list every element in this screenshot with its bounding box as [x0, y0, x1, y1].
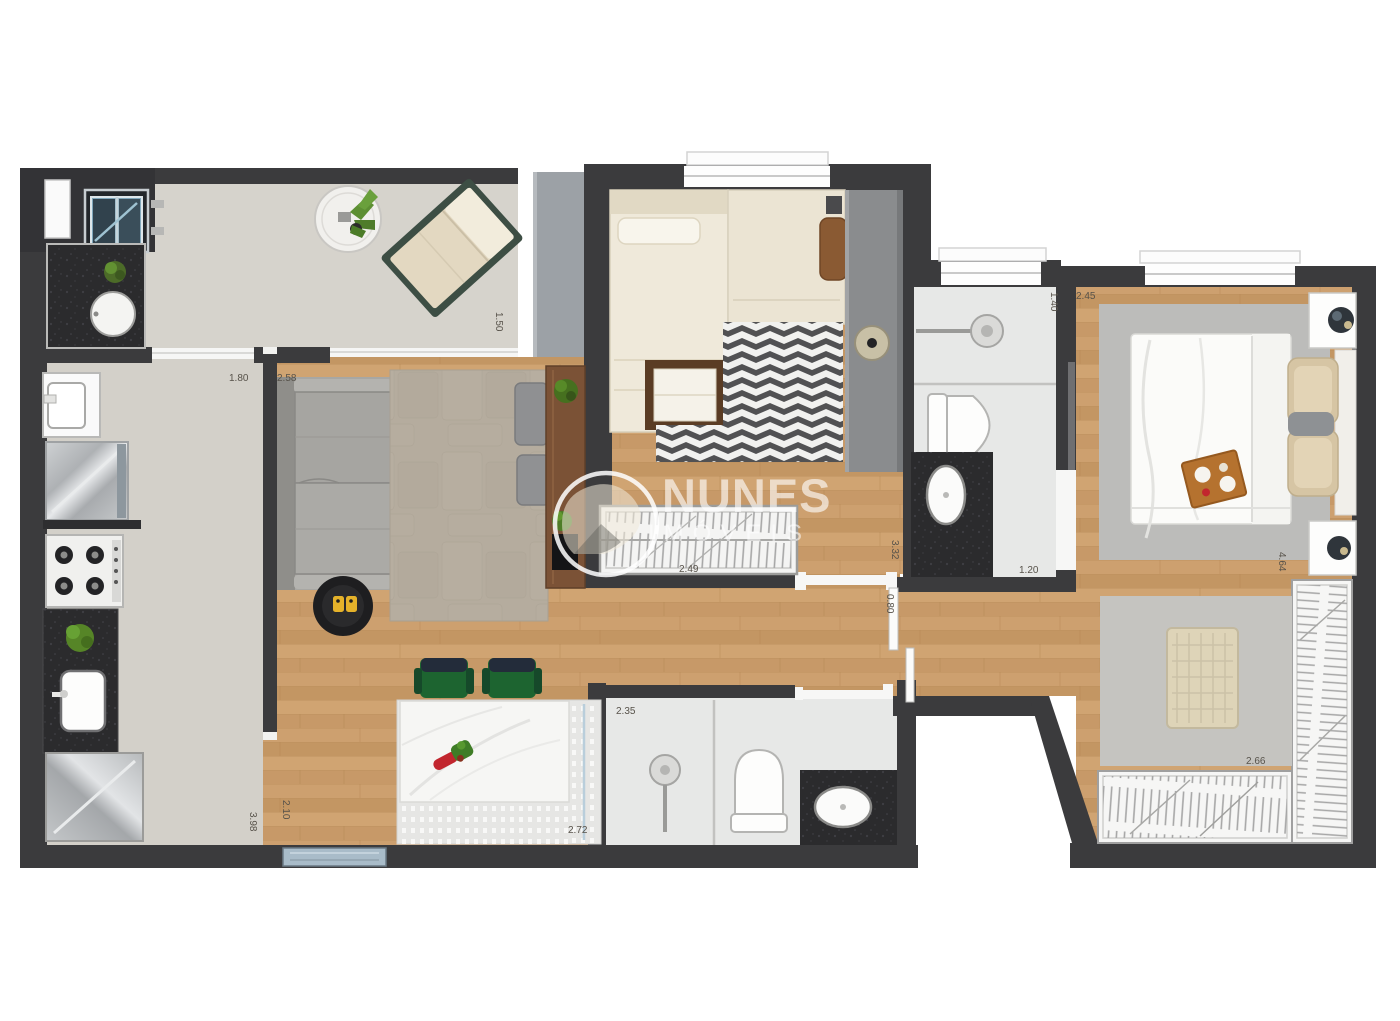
svg-text:2.72: 2.72: [568, 825, 588, 836]
svg-text:IMÓVEIS: IMÓVEIS: [648, 520, 811, 547]
svg-text:1.50: 1.50: [493, 312, 504, 332]
svg-text:2.66: 2.66: [1246, 756, 1266, 767]
svg-text:3.98: 3.98: [247, 812, 258, 832]
svg-text:3.32: 3.32: [889, 540, 900, 560]
svg-text:1.40: 1.40: [1048, 292, 1059, 312]
svg-text:4.64: 4.64: [1276, 552, 1287, 572]
svg-text:2.35: 2.35: [616, 706, 636, 717]
svg-text:2.49: 2.49: [679, 564, 699, 575]
svg-text:NUNES: NUNES: [662, 469, 832, 522]
svg-text:1.80: 1.80: [229, 373, 249, 384]
svg-text:2.10: 2.10: [280, 800, 291, 820]
svg-text:1.20: 1.20: [1019, 565, 1039, 576]
svg-text:2.45: 2.45: [1076, 291, 1096, 302]
svg-text:2.58: 2.58: [277, 373, 297, 384]
svg-text:0.80: 0.80: [884, 594, 895, 614]
